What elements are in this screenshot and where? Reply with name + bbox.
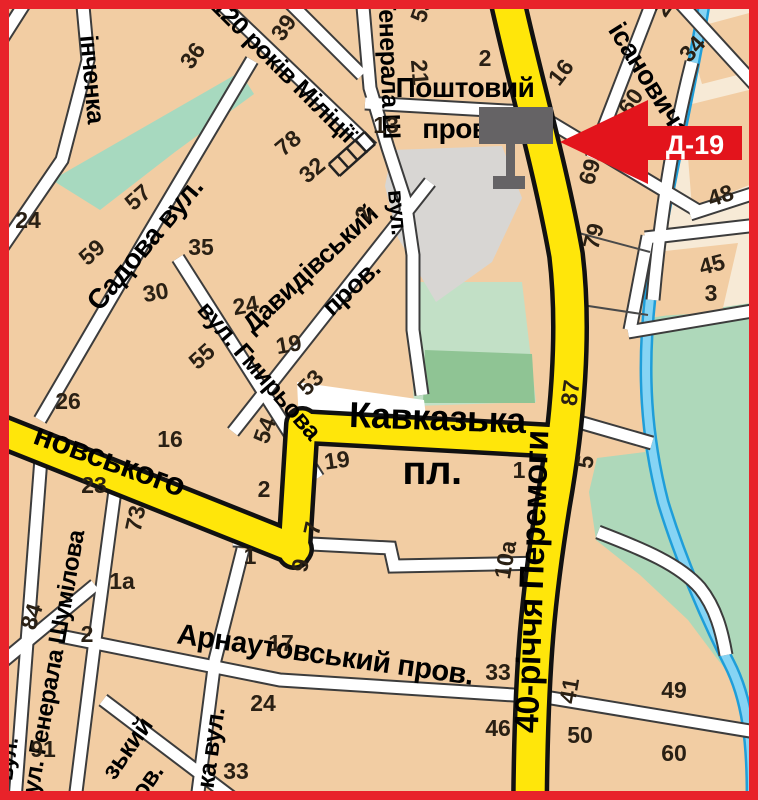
house-number: 49 [661, 677, 687, 703]
house-number: 1а [109, 568, 135, 594]
house-number: 30 [141, 277, 171, 307]
house-number: 2 [479, 45, 492, 71]
house-number: 3 [705, 280, 718, 306]
house-number: 73 [120, 503, 151, 533]
house-number: 33 [485, 659, 511, 685]
park-block-center-dark [423, 350, 535, 403]
house-number: 26 [55, 388, 81, 414]
house-number: 19 [322, 445, 351, 474]
street-label: вул. [383, 189, 413, 236]
city-map[interactable]: інченкаСадова вул.120 років МіліціїГенер… [0, 0, 758, 800]
map-container: інченкаСадова вул.120 років МіліціїГенер… [0, 0, 758, 800]
house-number: 2 [81, 621, 94, 647]
house-number: 33 [223, 758, 249, 784]
house-number: 35 [188, 234, 214, 260]
house-number: 16 [157, 426, 183, 452]
house-number: 41 [554, 676, 584, 706]
house-number: 87 [555, 378, 584, 407]
house-number: 17 [268, 630, 294, 656]
house-number: 19 [274, 329, 304, 359]
street-label: пл. [402, 449, 461, 493]
street-label: Кавказька [348, 394, 527, 441]
billboard-code-label: Д-19 [666, 130, 724, 160]
house-number: 23 [81, 472, 107, 498]
house-number: 91 [30, 736, 56, 762]
house-number: 1 [513, 457, 526, 483]
house-number: 24 [15, 207, 41, 233]
house-number: 24 [231, 290, 261, 320]
house-number: 24 [250, 690, 276, 716]
house-number: 46 [485, 715, 511, 741]
house-number: 1 [244, 543, 257, 569]
house-number: 2 [258, 476, 271, 502]
house-number: 60 [661, 740, 687, 766]
house-number: 21 [406, 58, 434, 86]
house-number: 50 [567, 722, 593, 748]
house-number: 13 [373, 112, 399, 138]
